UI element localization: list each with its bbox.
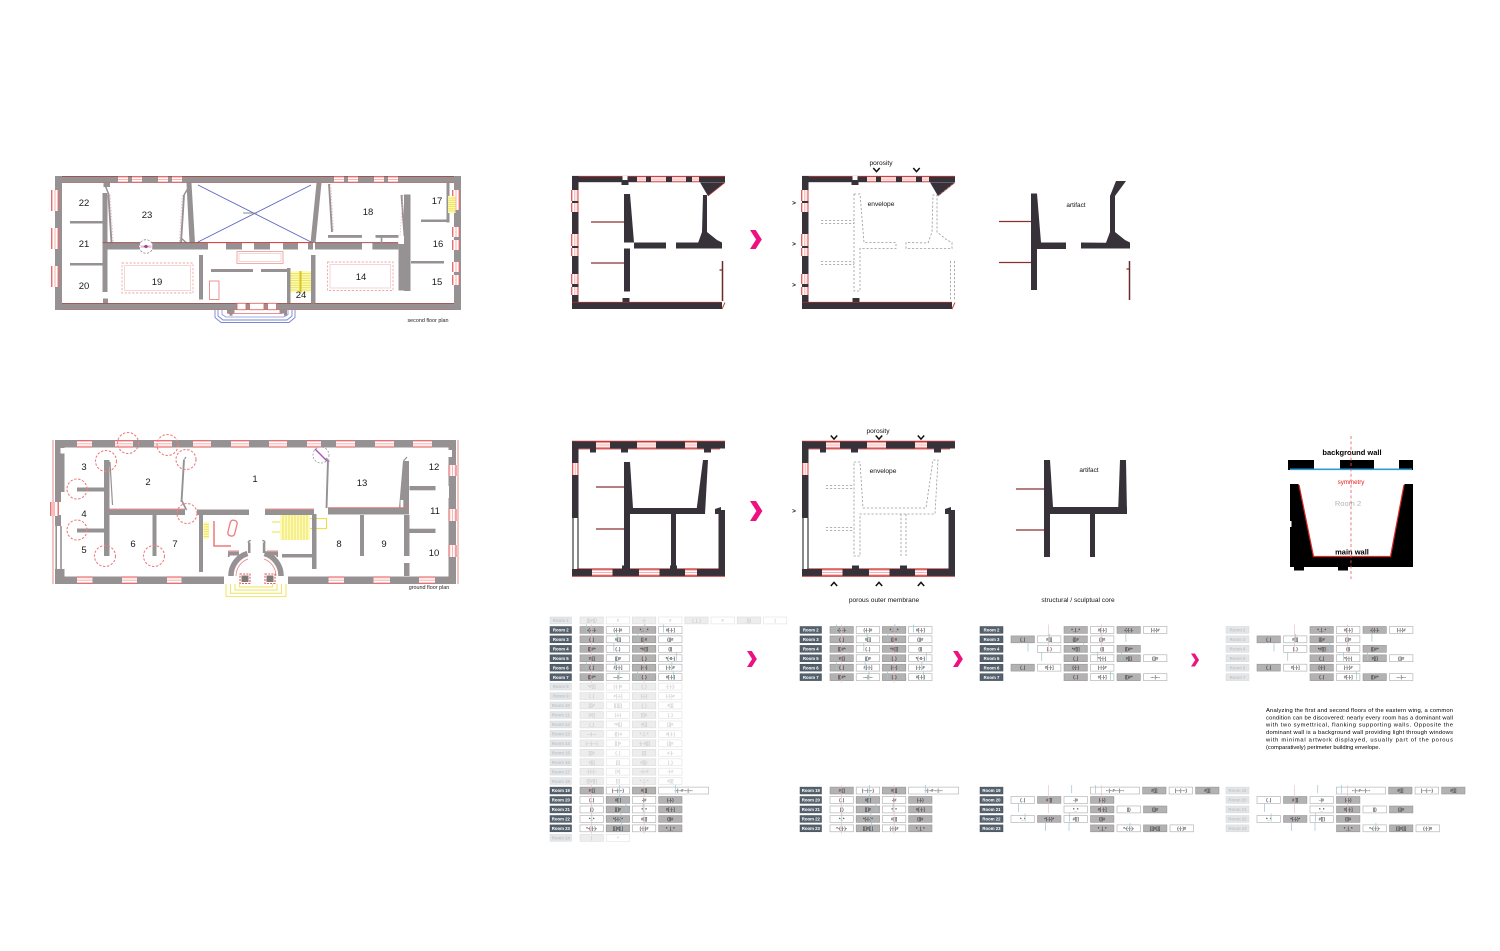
svg-text:with two symettrical, flanking: with two symettrical, flanking supportin… [1265, 723, 1453, 729]
svg-text:#[-|-]: #[-|-] [916, 807, 926, 812]
svg-text:*_|_*: *_|_* [1098, 826, 1107, 831]
svg-text:[|]#: [|]# [865, 807, 872, 812]
svg-text:Room 23: Room 23 [1228, 826, 1247, 831]
svg-text:symmetry: symmetry [1338, 479, 1366, 486]
svg-text:(|): (|) [1346, 646, 1351, 651]
svg-text:24: 24 [296, 290, 307, 301]
svg-text:(|)#: (|)# [1099, 637, 1106, 642]
svg-text:Room 2: Room 2 [803, 628, 819, 633]
svg-text:(_): (_) [642, 703, 648, 708]
svg-text:*#[|]: *#[|] [640, 646, 648, 651]
svg-text:(_): (_) [1020, 637, 1026, 642]
svg-text:envelope: envelope [868, 201, 895, 208]
svg-text:Room 22: Room 22 [1228, 817, 1247, 822]
svg-text:artifact: artifact [1079, 467, 1098, 474]
svg-text:(_|_): (_|_) [692, 618, 701, 623]
svg-text:12: 12 [429, 462, 440, 473]
svg-text:(_): (_) [642, 684, 648, 689]
svg-text:*_|_*: *_|_* [640, 779, 649, 784]
svg-text:#[|]: #[|] [667, 703, 674, 708]
svg-text:(_): (_) [1073, 656, 1079, 661]
svg-text:[#|]: [#|] [589, 713, 596, 718]
svg-text:artifact: artifact [1066, 202, 1085, 209]
svg-text:*(-0-): *(-0-) [916, 656, 926, 661]
svg-text:-(-|-)--: -(-|-)-- [586, 769, 597, 774]
svg-text:(|): (|) [590, 807, 595, 812]
svg-text:*#[|]: *#[|] [890, 646, 898, 651]
svg-text:---|---: ---|--- [613, 675, 623, 680]
svg-text:Room 7: Room 7 [1230, 675, 1246, 680]
svg-text:[|]#[|]: [|]#[|] [1396, 826, 1407, 831]
svg-text:Room 23: Room 23 [552, 826, 571, 831]
svg-text:#[|]-: #[|]- [640, 760, 648, 765]
svg-text:Room 22: Room 22 [982, 817, 1001, 822]
svg-text:*(-0-): *(-0-) [666, 656, 676, 661]
svg-text:#[-|-]: #[-|-] [666, 731, 676, 736]
svg-text:Room 2: Room 2 [1335, 499, 1361, 508]
svg-text:*_|_*: *_|_* [640, 731, 649, 736]
svg-text:Room 20: Room 20 [552, 798, 571, 803]
svg-text:dominant wall is a background: dominant wall is a background wall provi… [1266, 730, 1453, 736]
svg-text:Room 3: Room 3 [803, 637, 819, 642]
svg-text:(_): (_) [589, 722, 595, 727]
svg-text:*_|_*: *_|_* [916, 826, 925, 831]
svg-text:(-|-): (-|-) [917, 798, 924, 803]
svg-text:*#[|]: *#[|] [614, 722, 622, 727]
svg-text:(-|-): (-|-) [1345, 798, 1352, 803]
svg-text:*(-|-)*: *(-|-)* [1044, 817, 1054, 822]
svg-text:*#[|]: *#[|] [1318, 646, 1326, 651]
svg-text:(_): (_) [589, 665, 595, 670]
svg-text:(_): (_) [589, 798, 595, 803]
svg-text:(-|-): (-|-) [891, 665, 898, 670]
svg-text:---|---: ---|--- [1151, 675, 1161, 680]
svg-text:#[-|-]: #[-|-] [666, 628, 676, 633]
svg-text:[|]#[|]: [|]#[|] [1150, 826, 1161, 831]
svg-text:-|#: -|# [1319, 798, 1325, 803]
svg-text:(_): (_) [615, 646, 621, 651]
svg-text:ground floor plan: ground floor plan [409, 585, 449, 591]
svg-text:Room 5: Room 5 [1230, 656, 1246, 661]
svg-text:---|---: ---|--- [587, 731, 597, 736]
svg-text:(_): (_) [589, 694, 595, 699]
svg-text:Room 19: Room 19 [982, 788, 1001, 793]
svg-text:Room 12: Room 12 [552, 722, 571, 727]
svg-text:[[|]]]: [[|]]] [614, 703, 623, 708]
svg-text:(-|-): (-|-) [615, 713, 622, 718]
svg-text:(|): (|) [840, 807, 845, 812]
svg-text:Room 6: Room 6 [1230, 665, 1246, 670]
svg-text:-(-|-)-: -(-|-)- [1370, 628, 1380, 633]
svg-text:|: | [591, 835, 592, 840]
svg-text:(-|-)#: (-|-)# [613, 684, 623, 689]
svg-text:15: 15 [432, 277, 443, 288]
svg-text:#[|]: #[|] [589, 656, 596, 661]
svg-text:Room 2: Room 2 [1230, 628, 1246, 633]
svg-text:(-|-): (-|-) [1318, 665, 1325, 670]
svg-text:#[|]: #[|] [641, 788, 648, 793]
svg-text:#[-|-]: #[-|-] [1344, 807, 1354, 812]
svg-text:(_): (_) [892, 675, 898, 680]
svg-text:second floor plan: second floor plan [407, 318, 448, 324]
svg-text:>: > [792, 282, 796, 289]
svg-text:background wall: background wall [1322, 448, 1381, 457]
svg-text:Room 4: Room 4 [553, 647, 569, 652]
svg-text:Room 7: Room 7 [984, 675, 1000, 680]
svg-text:(-|-)#: (-|-)# [863, 628, 873, 633]
svg-text:(_): (_) [1020, 798, 1026, 803]
svg-text:Room 6: Room 6 [803, 665, 819, 670]
svg-text:(_): (_) [668, 760, 674, 765]
svg-text:*_|_*: *_|_* [1317, 628, 1326, 633]
svg-text:Room 19: Room 19 [802, 788, 821, 793]
svg-text:#[|]: #[|] [1046, 798, 1053, 803]
svg-text:(---|---): (---|---) [1175, 788, 1188, 793]
svg-text:22: 22 [79, 198, 90, 209]
svg-text:(-|-): (-|-) [667, 798, 674, 803]
svg-text:(_): (_) [589, 637, 595, 642]
svg-text:|: | [775, 618, 776, 623]
svg-text:*-(-|-)-: *-(-|-)- [586, 826, 598, 831]
svg-text:*-(-|-)-: *-(-|-)- [1369, 826, 1381, 831]
svg-text:2: 2 [145, 477, 150, 488]
svg-text:(|)#(|): (|)#(|) [587, 618, 598, 623]
svg-text:#[-|-]: #[-|-] [666, 807, 676, 812]
svg-text:--|--#---|---: --|--#---|--- [1106, 788, 1125, 793]
svg-text:(|)#: (|)# [1152, 807, 1159, 812]
svg-text:(-|-)#: (-|-)# [916, 665, 926, 670]
svg-text:>: > [792, 508, 796, 515]
svg-text:Room 21: Room 21 [982, 807, 1001, 812]
svg-text:Analyzing the first and second: Analyzing the first and second floors of… [1266, 708, 1453, 714]
svg-text:(_): (_) [1020, 665, 1026, 670]
svg-text:Room 20: Room 20 [982, 798, 1001, 803]
svg-text:Room 21: Room 21 [1228, 807, 1247, 812]
svg-text:#[|]: #[|] [667, 779, 674, 784]
svg-text:18: 18 [363, 207, 374, 218]
svg-text:(|)#: (|)# [1099, 817, 1106, 822]
svg-text:-|#: -|# [642, 798, 648, 803]
svg-text:with minimal artwork displayed: with minimal artwork displayed, usually … [1265, 737, 1453, 743]
svg-text:Room 4: Room 4 [1230, 647, 1246, 652]
svg-text:*_*: *_* [1319, 807, 1325, 812]
svg-text:(comparatively) perimeter buil: (comparatively) perimeter building envel… [1266, 745, 1380, 751]
svg-text:[|]#: [|]# [615, 807, 622, 812]
svg-text:(-|-): (-|-) [641, 665, 648, 670]
svg-text:Room 6: Room 6 [553, 665, 569, 670]
svg-text:>: > [792, 200, 796, 207]
svg-text:7: 7 [172, 539, 177, 550]
svg-text:(-|-)#: (-|-)# [1344, 665, 1354, 670]
svg-text:(_): (_) [1266, 637, 1272, 642]
svg-text:porosity: porosity [869, 160, 893, 167]
svg-text:Room 5: Room 5 [553, 656, 569, 661]
svg-text:#[-|-]: #[-|-] [1344, 628, 1354, 633]
svg-text:(|)#: (|)# [641, 637, 648, 642]
svg-text:-(-|-)-: -(-|-)- [1124, 628, 1134, 633]
svg-text:(|)#: (|)# [615, 656, 622, 661]
svg-text:(-|-)#: (-|-)# [1397, 628, 1407, 633]
svg-text:Room 3: Room 3 [984, 637, 1000, 642]
svg-text:#[|]: #[|] [1204, 788, 1211, 793]
svg-text:Room 13: Room 13 [552, 732, 571, 737]
svg-text:(_): (_) [1319, 656, 1325, 661]
svg-text:*_|_*: *_|_* [666, 826, 675, 831]
svg-text:(-|-): (-|-) [641, 694, 648, 699]
svg-text:#[|]: #[|] [1372, 656, 1379, 661]
svg-text:Room 3: Room 3 [553, 637, 569, 642]
svg-text:(---|---): (---|---) [862, 788, 875, 793]
svg-text:(-|-)#: (-|-)# [1423, 826, 1433, 831]
svg-text:Room 7: Room 7 [553, 675, 569, 680]
svg-text:[|]#: [|]# [667, 741, 674, 746]
svg-text:(-|-)#: (-|-)# [666, 665, 676, 670]
svg-text:5: 5 [81, 545, 86, 556]
svg-text:(_): (_) [1266, 665, 1272, 670]
svg-text:Room 20: Room 20 [1228, 798, 1247, 803]
svg-text:(_): (_) [1293, 646, 1299, 651]
svg-text:Room 6: Room 6 [984, 665, 1000, 670]
svg-text:(_): (_) [1073, 675, 1079, 680]
svg-text:Room 1: Room 1 [553, 618, 569, 623]
svg-text:[|]#: [|]# [589, 750, 596, 755]
svg-text:(|)#: (|)# [1398, 807, 1405, 812]
svg-text:-|#: -|# [892, 798, 898, 803]
svg-text:#[|]: #[|] [615, 637, 622, 642]
svg-text:Room 9: Room 9 [553, 694, 569, 699]
svg-text:--|--#---|---: --|--#---|--- [674, 788, 693, 793]
svg-text:#[-|-]: #[-|-] [1098, 807, 1108, 812]
svg-text:(|)#*: (|)#* [1125, 675, 1133, 680]
svg-text:(_): (_) [892, 656, 898, 661]
svg-text:Room 5: Room 5 [803, 656, 819, 661]
svg-text:(|)#*: (|)#* [1371, 675, 1379, 680]
svg-text:[|]: [|] [642, 750, 647, 755]
svg-text:[|]: [|] [616, 760, 621, 765]
svg-text:Room 22: Room 22 [802, 817, 821, 822]
svg-text:porosity: porosity [866, 428, 890, 435]
svg-text:porous outer membrane: porous outer membrane [849, 597, 920, 604]
svg-text:11: 11 [430, 506, 440, 517]
svg-text:#[-|-]: #[-|-] [916, 675, 926, 680]
svg-text:[|]#: [|]# [641, 713, 648, 718]
svg-text:(|): (|) [668, 646, 673, 651]
svg-text:#[-|-]: #[-|-] [1045, 665, 1055, 670]
svg-text:(|): (|) [918, 646, 923, 651]
svg-text:Room 23: Room 23 [802, 826, 821, 831]
svg-text:---|---: ---|--- [863, 675, 873, 680]
svg-text:[|]#[|]: [|]#[|] [587, 779, 598, 784]
svg-text:*(-|-): *(-|-) [1344, 656, 1353, 661]
svg-text:20: 20 [79, 281, 90, 292]
svg-text:16: 16 [433, 239, 444, 250]
svg-text:14: 14 [356, 272, 367, 283]
svg-text:Room 14: Room 14 [552, 741, 571, 746]
svg-text:Room 3: Room 3 [1230, 637, 1246, 642]
svg-text:#[|]: #[|] [641, 722, 648, 727]
svg-text:(-|-): (-|-) [1072, 665, 1079, 670]
svg-text:Room 2: Room 2 [984, 628, 1000, 633]
svg-text:(|)#: (|)# [1073, 637, 1080, 642]
svg-text:#[-|-]: #[-|-] [613, 694, 623, 699]
svg-text:(|)#: (|)# [1345, 817, 1352, 822]
svg-text:#[|]: #[|] [1450, 788, 1457, 793]
svg-text:Room 2: Room 2 [553, 628, 569, 633]
svg-text:Room 23: Room 23 [982, 826, 1001, 831]
svg-text:(|)#*: (|)#* [1371, 646, 1379, 651]
svg-text:-(-|-)-: -(-|-)- [837, 628, 847, 633]
svg-text:#[|]: #[|] [839, 788, 846, 793]
svg-text:*-(-|-)-: *-(-|-)- [1123, 826, 1135, 831]
svg-text:#[|]: #[|] [865, 798, 872, 803]
svg-text:(-|-)#: (-|-)# [890, 826, 900, 831]
svg-text:#[-|-]: #[-|-] [666, 675, 676, 680]
svg-text:Room 24: Room 24 [552, 836, 571, 841]
svg-text:3: 3 [81, 462, 86, 473]
svg-text:#[|]: #[|] [615, 798, 622, 803]
svg-text:Room 10: Room 10 [552, 703, 571, 708]
svg-text:Room 15: Room 15 [552, 750, 571, 755]
svg-text:(_): (_) [839, 798, 845, 803]
svg-text:#[-|-]: #[-|-] [1098, 628, 1108, 633]
svg-text:#-|-: #-|- [667, 750, 674, 755]
svg-text:6: 6 [130, 539, 135, 550]
svg-text:23: 23 [142, 210, 153, 221]
svg-text:(-|-)#: (-|-)# [613, 628, 623, 633]
svg-text:(-|-)#: (-|-)# [640, 826, 650, 831]
svg-text:envelope: envelope [870, 468, 897, 475]
svg-text:Room 4: Room 4 [984, 647, 1000, 652]
svg-text:[#]: [#] [615, 769, 621, 774]
svg-text:(|): (|) [1100, 646, 1105, 651]
svg-text:*#[|]: *#[|] [588, 684, 596, 689]
svg-text:>: > [792, 241, 796, 248]
svg-text:Room 8: Room 8 [553, 684, 569, 689]
svg-text:(_): (_) [642, 656, 648, 661]
svg-text:*_|_*: *_|_* [1344, 826, 1353, 831]
svg-text:*_*: *_* [1073, 807, 1079, 812]
svg-text:[|]#[|]: [|]#[|] [613, 826, 624, 831]
svg-text:Room 7: Room 7 [803, 675, 819, 680]
svg-text:Room 5: Room 5 [984, 656, 1000, 661]
svg-text:Room 22: Room 22 [552, 817, 571, 822]
svg-text:#[-|-]: #[-|-] [1291, 665, 1301, 670]
svg-text:*(-|-)*: *(-|-)* [863, 817, 873, 822]
svg-text:(-|-): (-|-) [1099, 798, 1106, 803]
svg-text:17: 17 [432, 196, 443, 207]
svg-text:--|--#: --|--# [640, 769, 650, 774]
svg-text:-[|]-#: -[|]-# [613, 731, 623, 736]
svg-text:#[-|-]: #[-|-] [1344, 675, 1354, 680]
svg-text:Room 4: Room 4 [803, 647, 819, 652]
svg-text:(_): (_) [668, 713, 674, 718]
svg-text:(|)#: (|)# [917, 637, 924, 642]
svg-text:Room 17: Room 17 [552, 769, 571, 774]
svg-text:(|)#: (|)# [1345, 637, 1352, 642]
svg-text:4: 4 [81, 509, 86, 520]
svg-text:#[-|-]: #[-|-] [916, 628, 926, 633]
svg-text:#[|]: #[|] [891, 817, 898, 822]
svg-text:(_): (_) [615, 750, 621, 755]
svg-text:#[|]: #[|] [1292, 798, 1299, 803]
svg-text:[|]#: [|]# [667, 722, 674, 727]
svg-text:Room 18: Room 18 [552, 779, 571, 784]
svg-text:(|): (|) [747, 618, 752, 623]
svg-text:-|#: -|# [1073, 798, 1079, 803]
svg-text:#[-|-]: #[-|-] [1098, 675, 1108, 680]
svg-text:-|--#[|]: -|--#[|] [638, 741, 650, 746]
svg-text:#[|]: #[|] [1073, 817, 1080, 822]
svg-text:(_): (_) [642, 675, 648, 680]
svg-text:(|): (|) [1127, 807, 1132, 812]
svg-text:(|)#: (|)# [891, 637, 898, 642]
svg-text:(|)#: (|)# [865, 656, 872, 661]
svg-text:*(-|-): *(-|-) [1098, 656, 1107, 661]
svg-text:#[|]: #[|] [839, 656, 846, 661]
svg-text:(|)#: (|)# [667, 637, 674, 642]
svg-text:Room 11: Room 11 [552, 713, 571, 718]
svg-text:(_): (_) [1047, 646, 1053, 651]
svg-text:*(-|-)*: *(-|-)* [613, 817, 623, 822]
svg-text:main wall: main wall [1335, 548, 1369, 557]
svg-text:(_): (_) [839, 637, 845, 642]
svg-text:Room 19: Room 19 [552, 788, 571, 793]
svg-text:Room 16: Room 16 [552, 760, 571, 765]
svg-text:(---|---): (---|---) [612, 788, 625, 793]
svg-text:1: 1 [252, 474, 257, 485]
svg-text:(|)#: (|)# [1152, 656, 1159, 661]
svg-text:(|)#: (|)# [1319, 637, 1326, 642]
svg-text:#[|]: #[|] [1319, 817, 1326, 822]
svg-text:(|)#: (|)# [667, 817, 674, 822]
svg-text:(|)#: (|)# [1398, 656, 1405, 661]
svg-text:8: 8 [336, 539, 341, 550]
svg-text:(_): (_) [839, 665, 845, 670]
svg-text:(-|-)#: (-|-)# [1177, 826, 1187, 831]
svg-text:10: 10 [429, 548, 440, 559]
svg-text:9: 9 [381, 539, 386, 550]
svg-text:#[|]: #[|] [589, 788, 596, 793]
svg-text:*(-|-)*: *(-|-)* [1290, 817, 1300, 822]
svg-text:*-(-|-)-: *-(-|-)- [836, 826, 848, 831]
svg-text:(---|---): (---|---) [1421, 788, 1434, 793]
svg-text:Room 20: Room 20 [802, 798, 821, 803]
svg-text:(_): (_) [1266, 798, 1272, 803]
svg-text:19: 19 [152, 277, 163, 288]
svg-text:(|)#*: (|)#* [1125, 646, 1133, 651]
svg-text:#[|]: #[|] [589, 760, 596, 765]
svg-text:(_): (_) [1319, 675, 1325, 680]
svg-text:*_|_*: *_|_* [1071, 628, 1080, 633]
svg-text:-(-|-)-: -(-|-)- [587, 628, 597, 633]
svg-text:structural / sculptual core: structural / sculptual core [1041, 597, 1115, 604]
svg-text:(-|-)#: (-|-)# [1098, 665, 1108, 670]
svg-text:Room 21: Room 21 [802, 807, 821, 812]
svg-text:[|]#: [|]# [615, 741, 622, 746]
svg-text:#[|]: #[|] [641, 817, 648, 822]
svg-text:Room 21: Room 21 [552, 807, 571, 812]
svg-text:[|]#: [|]# [589, 703, 596, 708]
svg-text:Room 19: Room 19 [1228, 788, 1247, 793]
svg-text:(-|-)#: (-|-)# [1151, 628, 1161, 633]
svg-text:#[|]: #[|] [865, 637, 872, 642]
svg-text:-|-#: -|-# [667, 769, 674, 774]
svg-text:#[|]: #[|] [1397, 788, 1404, 793]
svg-text:#[|]: #[|] [1126, 656, 1133, 661]
svg-text:[|]: [|] [616, 779, 621, 784]
svg-text:(|)#: (|)# [917, 817, 924, 822]
svg-text:*#[|]: *#[|] [1072, 646, 1080, 651]
